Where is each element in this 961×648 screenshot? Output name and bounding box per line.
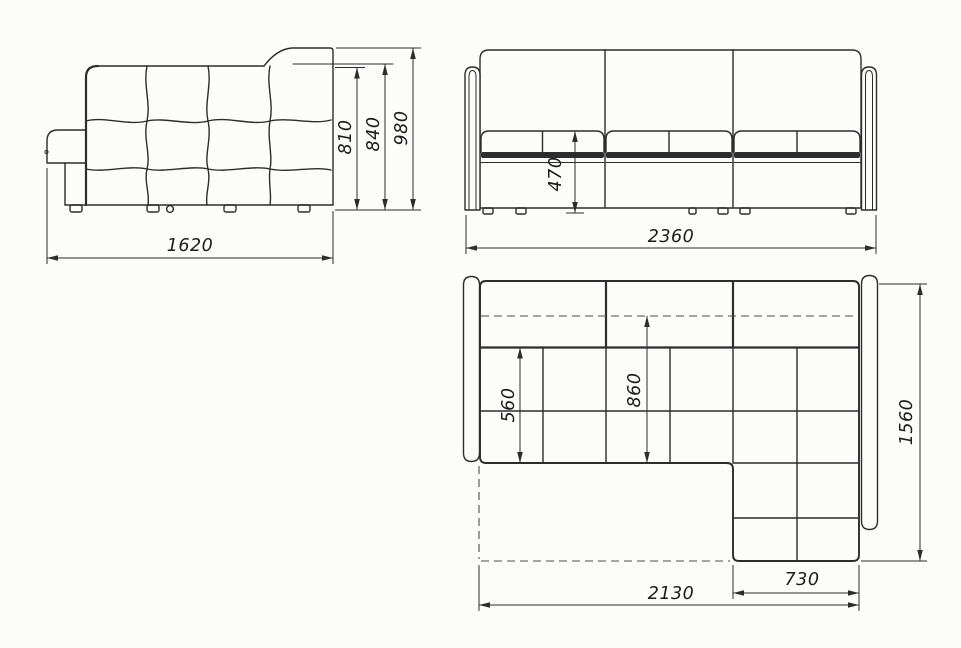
cushion-seam-vertical xyxy=(207,66,210,205)
cushion-seam-vertical xyxy=(269,66,271,205)
dim-seat-depth: 560 xyxy=(499,388,519,423)
foot xyxy=(483,208,493,214)
armrest-right-plan xyxy=(862,276,878,530)
extension-lines xyxy=(566,131,584,213)
dim-ledge-height: 840 xyxy=(364,117,384,152)
foot xyxy=(516,208,526,214)
side-view: 810 840 980 1620 xyxy=(45,48,421,264)
seat-gap-band xyxy=(734,152,860,158)
foot xyxy=(846,208,856,214)
foot xyxy=(740,208,750,214)
backrest-outline xyxy=(480,50,861,131)
dim-total-depth: 1560 xyxy=(897,399,917,446)
dim-sleeping-length: 2130 xyxy=(648,584,695,604)
front-view: 470 2360 xyxy=(465,50,877,254)
dim-backrest-height: 810 xyxy=(336,120,356,155)
back-left-edge xyxy=(86,66,98,205)
seat-cushions xyxy=(481,131,860,152)
headrest-profile xyxy=(264,48,333,205)
dim-chaise-width: 730 xyxy=(785,570,820,590)
armrest-left xyxy=(465,67,480,210)
armrest-left-plan xyxy=(464,277,480,462)
armrest-profile xyxy=(47,130,86,163)
dim-sleeping-depth: 860 xyxy=(625,373,645,408)
seat-gap-band xyxy=(481,152,604,158)
foot xyxy=(70,205,82,212)
seat-gap-band xyxy=(606,152,732,158)
side-dimensions: 810 840 980 1620 xyxy=(47,48,421,264)
dimension-arrowheads xyxy=(479,284,923,608)
foot xyxy=(298,205,310,212)
foot xyxy=(224,205,236,212)
caster-wheel xyxy=(167,206,174,213)
seat-grid-lines xyxy=(480,348,859,562)
front-dimensions: 470 2360 xyxy=(466,131,876,254)
dim-seat-height: 470 xyxy=(546,157,566,192)
dim-depth: 1620 xyxy=(167,236,214,256)
plan-view: 560 860 1560 730 2130 xyxy=(464,276,928,612)
foot xyxy=(147,205,159,212)
foot xyxy=(689,208,696,214)
cushion-seam-vertical xyxy=(146,66,149,205)
foot xyxy=(718,208,728,214)
dim-total-height: 980 xyxy=(392,111,412,146)
technical-drawing-canvas: 810 840 980 1620 4 xyxy=(0,0,961,648)
armrest-right xyxy=(862,67,877,210)
sofa-three-view-drawing: 810 840 980 1620 4 xyxy=(0,0,961,648)
dim-total-width: 2360 xyxy=(648,227,695,247)
